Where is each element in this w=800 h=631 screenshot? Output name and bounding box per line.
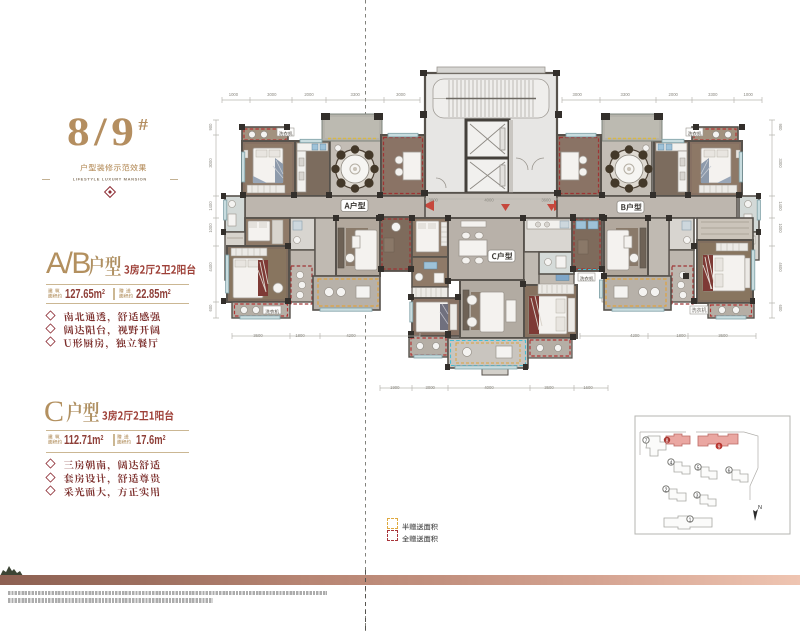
- svg-text:4200: 4200: [346, 333, 356, 338]
- svg-text:2: 2: [665, 487, 668, 493]
- svg-text:3300: 3300: [778, 158, 783, 168]
- svg-text:3000: 3000: [208, 158, 213, 168]
- svg-text:9: 9: [718, 445, 721, 451]
- svg-text:1400: 1400: [778, 201, 783, 211]
- svg-text:8: 8: [666, 438, 669, 444]
- svg-text:3300: 3300: [621, 92, 631, 97]
- svg-text:2000: 2000: [669, 92, 679, 97]
- svg-text:4000: 4000: [484, 198, 494, 203]
- svg-text:3600: 3600: [253, 333, 263, 338]
- svg-text:1600: 1600: [583, 385, 593, 390]
- svg-text:4200: 4200: [630, 333, 640, 338]
- svg-text:1000: 1000: [208, 223, 213, 233]
- svg-text:1900: 1900: [390, 385, 400, 390]
- svg-text:3000: 3000: [396, 92, 406, 97]
- svg-text:3600: 3600: [541, 198, 551, 203]
- svg-text:1000: 1000: [778, 223, 783, 233]
- svg-text:600: 600: [208, 304, 213, 312]
- svg-text:3600: 3600: [718, 333, 728, 338]
- svg-text:洗衣机: 洗衣机: [691, 307, 706, 314]
- svg-text:1000: 1000: [229, 92, 239, 97]
- svg-text:7: 7: [645, 438, 648, 444]
- svg-text:N: N: [758, 505, 762, 511]
- svg-text:1400: 1400: [208, 201, 213, 211]
- svg-text:3000: 3000: [426, 385, 436, 390]
- svg-text:3000: 3000: [429, 198, 439, 203]
- svg-text:3000: 3000: [573, 92, 583, 97]
- svg-text:1800: 1800: [676, 333, 686, 338]
- svg-text:1: 1: [689, 517, 692, 523]
- svg-text:4: 4: [670, 460, 673, 466]
- svg-text:1800: 1800: [295, 333, 305, 338]
- svg-text:3000: 3000: [267, 92, 277, 97]
- svg-text:4000: 4000: [484, 385, 494, 390]
- svg-text:4400: 4400: [208, 262, 213, 272]
- svg-text:3: 3: [696, 493, 699, 499]
- svg-text:1000: 1000: [744, 92, 754, 97]
- svg-text:6: 6: [728, 468, 731, 474]
- svg-text:5: 5: [697, 465, 700, 471]
- svg-text:3300: 3300: [708, 92, 718, 97]
- svg-text:4600: 4600: [778, 262, 783, 272]
- svg-text:600: 600: [778, 305, 783, 313]
- svg-text:3600: 3600: [544, 385, 554, 390]
- svg-text:900: 900: [778, 124, 783, 132]
- svg-text:3300: 3300: [351, 92, 361, 97]
- svg-text:900: 900: [208, 123, 213, 131]
- svg-text:2000: 2000: [304, 92, 314, 97]
